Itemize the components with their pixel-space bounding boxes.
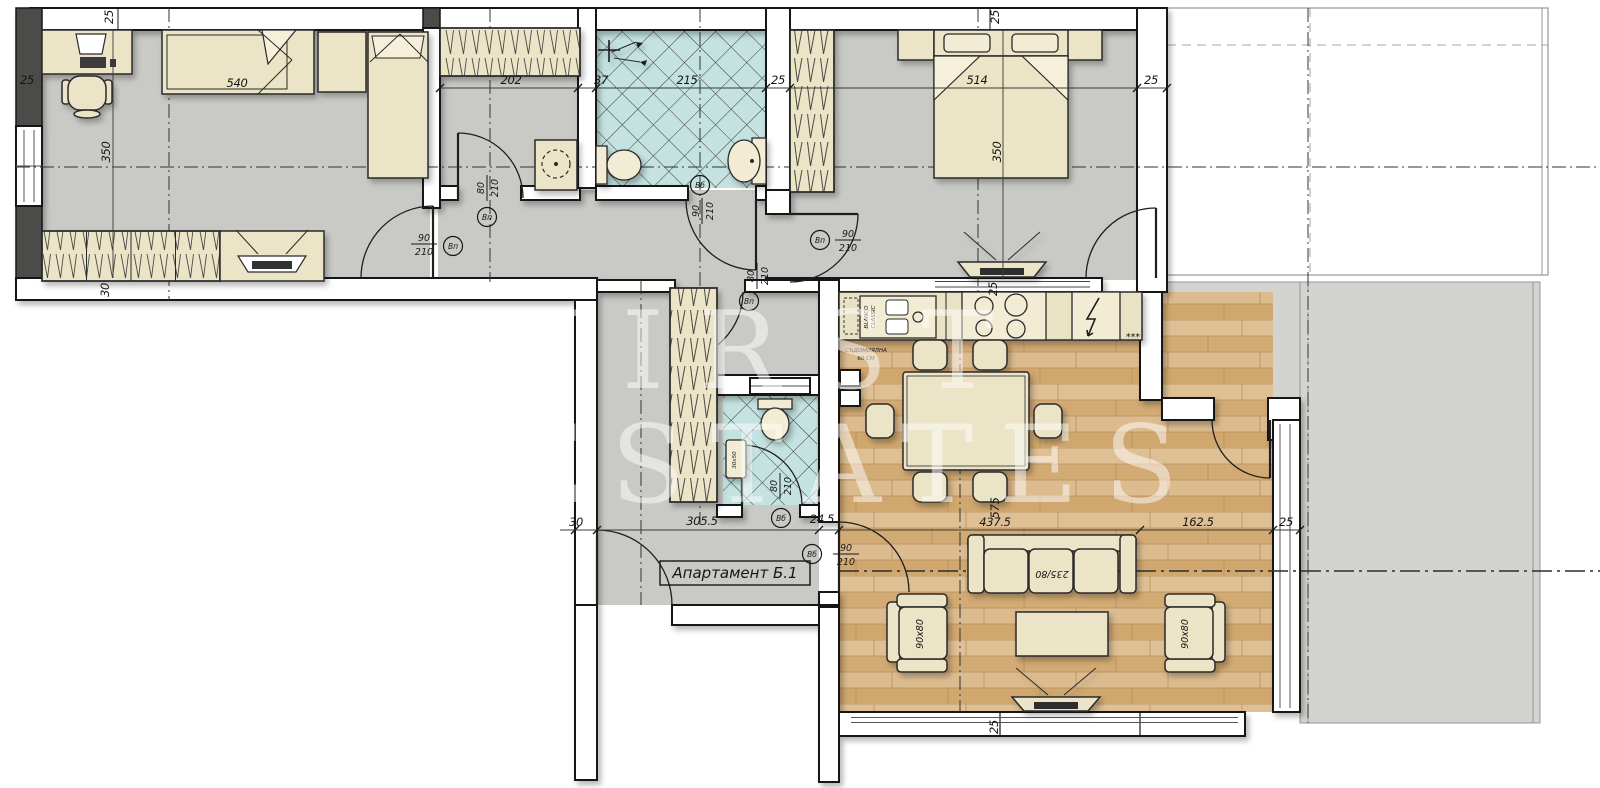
svg-text:210: 210	[490, 179, 501, 197]
dim-gap: 37	[594, 73, 609, 87]
dim-bath-width: 215	[676, 73, 697, 87]
svg-text:90: 90	[691, 205, 702, 217]
svg-text:Вп: Вп	[448, 242, 458, 251]
dim-wall-bath: 25	[771, 73, 785, 87]
svg-text:210: 210	[705, 202, 716, 220]
svg-text:210: 210	[415, 247, 433, 258]
wardrobe-bedroom2	[790, 30, 834, 192]
wardrobe-bedroom1	[42, 231, 220, 281]
dim-living-bottom: 25	[987, 720, 1001, 734]
refrigerator	[1072, 292, 1120, 340]
svg-text:90: 90	[842, 229, 854, 240]
tv-cabinet-bedroom1	[220, 230, 324, 281]
dim-top-left: 25	[102, 10, 116, 24]
sofa	[968, 535, 1136, 593]
dim-room1-depth: 350	[99, 141, 113, 162]
armchair-right-size-label: 90x80	[1180, 619, 1191, 649]
watermark-line1: FIRST	[513, 289, 1028, 414]
single-bed-2	[368, 32, 428, 178]
wall-living-bottom	[839, 712, 1245, 736]
nightstand-left	[898, 30, 934, 60]
floor-plan-svg: 25 25 540 350 30 202 37 215 25 514 350 2…	[0, 0, 1600, 788]
wall-landing-left	[575, 605, 597, 780]
svg-text:Вб: Вб	[695, 181, 705, 190]
wall-right-bedroom2	[1137, 8, 1167, 292]
wall-landing-top	[672, 605, 839, 625]
svg-text:80: 80	[746, 270, 757, 282]
dim-closet-width: 202	[500, 73, 521, 87]
nightstand	[318, 32, 366, 92]
wardrobe-closet	[440, 28, 580, 76]
dim-top-bed2: 25	[988, 10, 1002, 24]
dim-room2-depth: 350	[990, 141, 1004, 162]
dim-window-wall: 25	[1279, 515, 1293, 529]
armchair-right	[1165, 594, 1225, 672]
washing-machine	[535, 140, 577, 190]
freezer-marks-label: ***	[1126, 332, 1141, 343]
svg-text:80: 80	[476, 182, 487, 194]
svg-text:210: 210	[839, 243, 857, 254]
watermark-line2: ESTATES	[506, 403, 1204, 528]
svg-text:Вп: Вп	[815, 236, 825, 245]
svg-text:90: 90	[418, 233, 430, 244]
apartment-title: Апартамент Б.1	[671, 564, 797, 582]
svg-text:90: 90	[840, 543, 852, 554]
svg-text:210: 210	[760, 267, 771, 285]
wash-basin-bathroom	[728, 138, 766, 184]
neighbor-unit-outline	[1167, 8, 1548, 275]
monitor-icon	[76, 34, 106, 54]
window-right-living	[1273, 420, 1300, 712]
wall-landing-right	[819, 607, 839, 782]
svg-text:Вп: Вп	[482, 213, 492, 222]
dim-bottom-wall: 30	[98, 283, 112, 297]
nightstand-right	[1066, 30, 1102, 60]
dim-bed1: 540	[226, 76, 247, 90]
sofa-size-label: 235/80	[1035, 568, 1068, 579]
coffee-table	[1016, 612, 1108, 656]
keyboard-icon	[80, 57, 106, 68]
apartment-label: Апартамент Б.1	[660, 561, 810, 585]
dim-left-wall: 25	[20, 73, 34, 87]
dim-right-wall: 25	[1144, 73, 1158, 87]
dim-bed2: 514	[966, 73, 987, 87]
armchair-left-size-label: 90x80	[915, 619, 926, 649]
svg-text:Вб: Вб	[807, 550, 817, 559]
svg-text:210: 210	[837, 557, 855, 568]
floor-plan-page: 25 25 540 350 30 202 37 215 25 514 350 2…	[0, 0, 1600, 788]
